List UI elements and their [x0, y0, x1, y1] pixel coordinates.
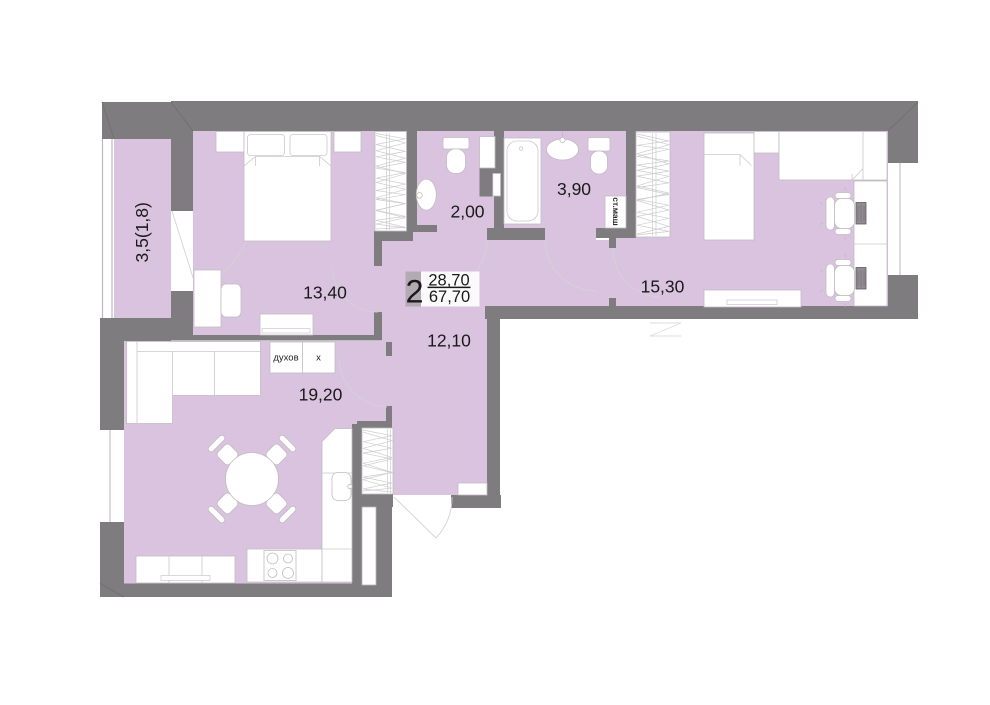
- svg-text:2: 2: [405, 274, 423, 310]
- svg-text:2,00: 2,00: [450, 202, 484, 222]
- svg-text:28,70: 28,70: [428, 271, 469, 289]
- svg-text:12,10: 12,10: [427, 330, 471, 350]
- svg-text:19,20: 19,20: [299, 384, 343, 404]
- svg-text:15,30: 15,30: [641, 276, 685, 296]
- svg-text:духов: духов: [273, 353, 298, 364]
- svg-text:х: х: [316, 353, 321, 364]
- svg-text:3,90: 3,90: [557, 179, 591, 199]
- svg-text:13,40: 13,40: [303, 282, 347, 302]
- svg-text:67,70: 67,70: [429, 288, 470, 306]
- svg-text:ст.маш: ст.маш: [611, 197, 621, 226]
- svg-text:3,5(1,8): 3,5(1,8): [132, 202, 152, 262]
